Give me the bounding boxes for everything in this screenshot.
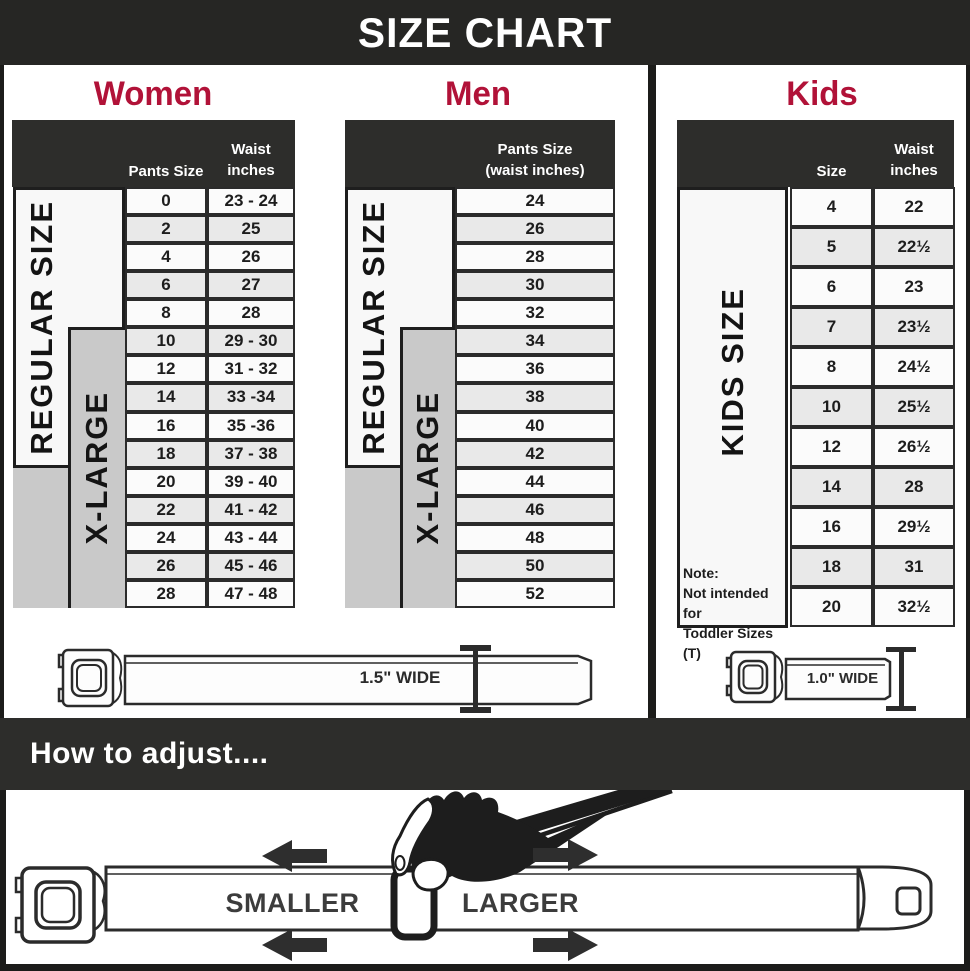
table-cell: 42 [455,440,615,468]
table-cell: 25 [207,215,295,243]
table-cell: 5 [790,227,873,267]
table-cell: 12 [790,427,873,467]
how-to-adjust-title: How to adjust.... [30,737,269,771]
size-chart-infographic: SIZE CHART Women Men Kids Pants Size Wai… [0,0,970,971]
men-size-table: 242628303234363840424446485052 [455,187,615,608]
table-cell: 29 - 30 [207,327,295,355]
table-cell: 26 [125,552,207,580]
larger-label: LARGER [458,888,583,919]
men-xlarge-box-fill [345,468,400,608]
adult-belt-illustration [0,640,650,720]
table-cell: 44 [455,468,615,496]
table-cell: 6 [125,271,207,299]
table-cell: 25½ [873,387,955,427]
kids-note-line2: Not intended for [683,585,769,621]
table-cell: 28 [873,467,955,507]
table-cell: 35 -36 [207,412,295,440]
men-xlarge-label: X-LARGE [400,327,455,608]
table-cell: 45 - 46 [207,552,295,580]
table-cell: 52 [455,580,615,608]
kids-size-table: 422522½623723½824½1025½1226½14281629½183… [790,187,955,627]
table-cell: 7 [790,307,873,347]
panel-bottom-border [0,964,970,971]
table-cell: 31 - 32 [207,355,295,383]
table-cell: 50 [455,552,615,580]
table-cell: 16 [125,412,207,440]
table-cell: 41 - 42 [207,496,295,524]
table-cell: 16 [790,507,873,547]
table-cell: 18 [790,547,873,587]
table-cell: 32½ [873,587,955,627]
women-regular-size-label: REGULAR SIZE [13,187,70,468]
belt-tip-hole-icon [897,888,920,914]
table-cell: 29½ [873,507,955,547]
table-cell: 8 [125,299,207,327]
table-cell: 26 [455,215,615,243]
women-header: Women [56,74,250,114]
women-col-waist: Waist inches [207,139,295,181]
table-cell: 36 [455,355,615,383]
men-col-pants-size: Pants Size (waist inches) [455,139,615,181]
adult-belt-width-label: 1.5" WIDE [340,668,460,688]
table-cell: 23½ [873,307,955,347]
kids-header: Kids [725,74,919,114]
how-to-adjust-bar: How to adjust.... [0,718,970,790]
table-cell: 24½ [873,347,955,387]
table-cell: 26 [207,243,295,271]
table-cell: 20 [790,587,873,627]
left-border [0,65,4,718]
table-cell: 31 [873,547,955,587]
table-cell: 4 [125,243,207,271]
table-cell: 23 - 24 [207,187,295,215]
table-cell: 48 [455,524,615,552]
arrow-right-icon [533,929,598,961]
table-cell: 39 - 40 [207,468,295,496]
men-header: Men [381,74,575,114]
table-cell: 2 [125,215,207,243]
women-size-table: 023 - 242254266278281029 - 301231 - 3214… [125,187,295,608]
table-cell: 4 [790,187,873,227]
table-cell: 28 [207,299,295,327]
table-cell: 14 [790,467,873,507]
kids-belt-width-label: 1.0" WIDE [795,670,890,687]
table-cell: 34 [455,327,615,355]
table-cell: 24 [125,524,207,552]
table-cell: 28 [125,580,207,608]
table-cell: 23 [873,267,955,307]
table-cell: 37 - 38 [207,440,295,468]
kids-col-size: Size [790,161,873,182]
kids-note-line1: Note: [683,565,719,581]
title-banner: SIZE CHART [0,0,970,65]
women-xlarge-label: X-LARGE [68,327,125,608]
table-cell: 14 [125,383,207,411]
page-title: SIZE CHART [358,9,612,57]
table-cell: 8 [790,347,873,387]
table-cell: 33 -34 [207,383,295,411]
table-cell: 10 [790,387,873,427]
thumb-icon [413,859,448,890]
table-cell: 28 [455,243,615,271]
table-cell: 0 [125,187,207,215]
table-cell: 18 [125,440,207,468]
women-xlarge-box-fill [13,468,68,608]
table-cell: 30 [455,271,615,299]
table-cell: 47 - 48 [207,580,295,608]
table-cell: 6 [790,267,873,307]
smaller-label: SMALLER [225,888,360,919]
table-cell: 38 [455,383,615,411]
arrow-left-icon [262,929,327,961]
table-cell: 40 [455,412,615,440]
table-cell: 22 [125,496,207,524]
kids-col-waist: Waist inches [873,139,955,181]
table-cell: 32 [455,299,615,327]
table-cell: 43 - 44 [207,524,295,552]
table-cell: 12 [125,355,207,383]
table-cell: 22½ [873,227,955,267]
table-cell: 26½ [873,427,955,467]
panel-right-border [964,790,970,971]
section-divider [648,65,656,718]
table-cell: 10 [125,327,207,355]
table-cell: 46 [455,496,615,524]
table-cell: 22 [873,187,955,227]
women-col-pants-size: Pants Size [121,161,211,182]
table-cell: 20 [125,468,207,496]
men-regular-size-label: REGULAR SIZE [345,187,402,468]
right-border [966,65,970,718]
adjust-belt-illustration [6,790,964,964]
table-cell: 24 [455,187,615,215]
table-cell: 27 [207,271,295,299]
fingernail-icon [396,856,405,870]
kids-size-label: KIDS SIZE [677,187,788,557]
